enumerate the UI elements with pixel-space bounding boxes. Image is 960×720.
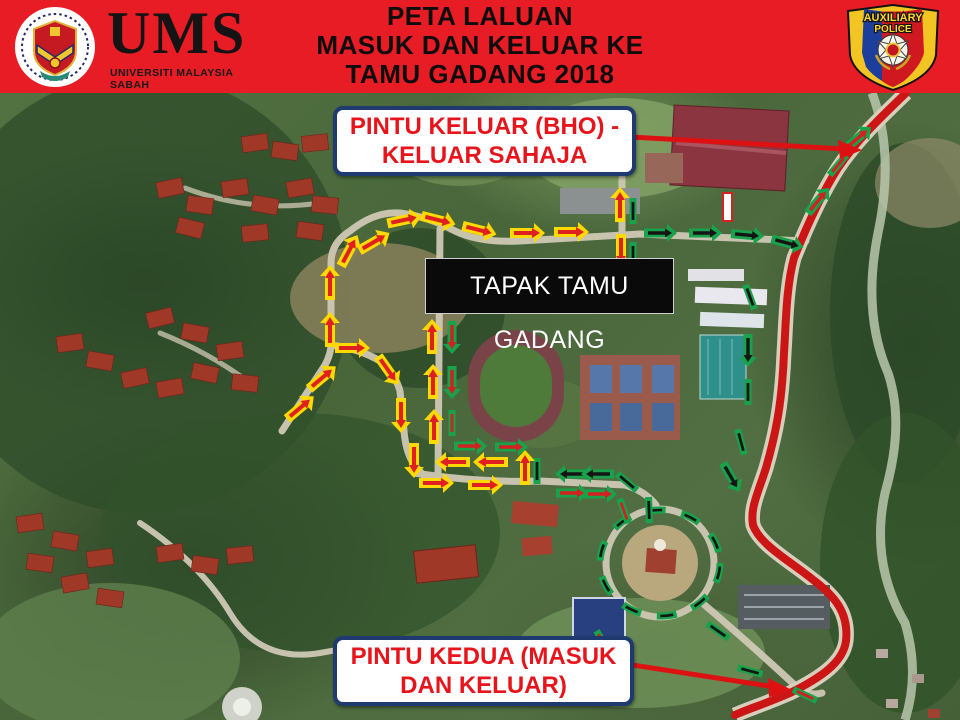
ums-acronym: UMS [107,0,246,68]
title-line-2: MASUK DAN KELUAR KE [240,31,720,60]
second-gate-label-line2: DAN KELUAR) [343,671,624,700]
title-line-1: PETA LALUAN [240,2,720,31]
ums-logo: UMS UNIVERSITI MALAYSIA SABAH [10,5,240,89]
second-gate-label-line1: PINTU KEDUA (MASUK [343,642,624,671]
title-line-3: TAMU GADANG 2018 [240,60,720,89]
header-bar: UMS UNIVERSITI MALAYSIA SABAH PETA LALUA… [0,0,960,93]
auxiliary-police-badge-icon: AUXILIARY POLICE [842,3,944,91]
site-label: TAPAK TAMU GADANG [425,258,674,314]
badge-text-top: AUXILIARY [864,12,924,24]
campus-satellite-map: PINTU KELUAR (BHO) - KELUAR SAHAJA TAPAK… [0,93,960,720]
slide: UMS UNIVERSITI MALAYSIA SABAH PETA LALUA… [0,0,960,720]
exit-gate-label-line1: PINTU KELUAR (BHO) - [343,112,626,141]
badge-text-bottom: POLICE [874,24,912,35]
page-title: PETA LALUAN MASUK DAN KELUAR KE TAMU GAD… [240,2,720,89]
ums-name: UNIVERSITI MALAYSIA SABAH [110,67,240,91]
second-gate-label: PINTU KEDUA (MASUK DAN KELUAR) [333,636,634,706]
exit-gate-label-line2: KELUAR SAHAJA [343,141,626,170]
exit-gate-label: PINTU KELUAR (BHO) - KELUAR SAHAJA [333,106,636,176]
